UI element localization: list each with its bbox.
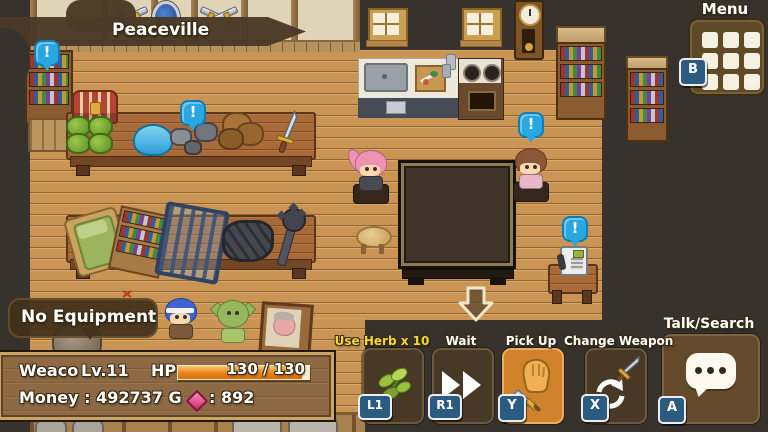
location-name: Peaceville bbox=[112, 20, 209, 40]
sword-item[interactable] bbox=[270, 110, 304, 158]
blue-haired-hero[interactable] bbox=[160, 296, 200, 352]
equipment-notice-bubble: No Equipment bbox=[8, 298, 158, 338]
bookshelf bbox=[556, 42, 606, 120]
goblin[interactable] bbox=[212, 298, 252, 354]
stove-top bbox=[459, 59, 501, 83]
creature-leg bbox=[72, 419, 104, 432]
clock-face bbox=[519, 4, 541, 26]
clock-pendulum-window bbox=[522, 29, 535, 53]
key-badge-y[interactable]: Y bbox=[498, 394, 526, 422]
key-badge-b[interactable]: B bbox=[679, 58, 707, 86]
status-panel: Weaco Lv.11 HP 130 / 130 Money : 492737 … bbox=[0, 352, 334, 420]
action-label-change-weapon: Change Weapon bbox=[564, 334, 664, 348]
mace-item[interactable] bbox=[264, 208, 308, 266]
action-label-use-herb: Use Herb x 10 bbox=[327, 334, 437, 348]
gem-count: : 892 bbox=[209, 388, 254, 407]
window bbox=[368, 8, 408, 44]
player-name: Weaco bbox=[19, 361, 78, 380]
stool bbox=[356, 226, 392, 256]
action-label-talk-search: Talk/Search bbox=[662, 316, 756, 332]
indicator-bookshelf[interactable]: ! bbox=[34, 40, 60, 66]
stove bbox=[458, 58, 504, 120]
towel bbox=[386, 101, 406, 114]
menu-label: Menu bbox=[688, 0, 762, 18]
key-badge-x[interactable]: X bbox=[581, 394, 609, 422]
speech-bubble-icon bbox=[686, 353, 736, 389]
hp-value: 130 / 130 bbox=[201, 360, 305, 378]
wall-post bbox=[353, 0, 360, 40]
sink bbox=[364, 63, 408, 92]
hp-label: HP bbox=[151, 361, 176, 380]
wall-clock bbox=[514, 0, 544, 60]
indicator-npc[interactable]: ! bbox=[518, 112, 544, 138]
indicator-phone[interactable]: ! bbox=[562, 216, 588, 242]
game-screen: Peaceville bbox=[0, 0, 768, 432]
key-badge-l1[interactable]: L1 bbox=[358, 394, 392, 420]
player-level: Lv.11 bbox=[81, 361, 129, 380]
cabbage-crate bbox=[66, 116, 112, 152]
indicator-rocks[interactable]: ! bbox=[180, 100, 206, 126]
pink-gem-icon bbox=[186, 390, 209, 413]
counter-base bbox=[358, 98, 458, 118]
steel-cage-item[interactable] bbox=[154, 201, 230, 285]
oven-door bbox=[468, 91, 496, 111]
kitchen-counter bbox=[358, 58, 502, 118]
brown-haired-villager[interactable] bbox=[510, 146, 550, 202]
window bbox=[462, 8, 502, 44]
action-label-pick-up: Pick Up bbox=[496, 334, 566, 348]
jar bbox=[442, 64, 451, 78]
grand-table bbox=[398, 160, 516, 282]
bookshelf bbox=[626, 68, 668, 142]
blue-slime-item[interactable] bbox=[133, 124, 173, 156]
key-badge-a[interactable]: A bbox=[658, 396, 686, 424]
dirt-pile-item[interactable] bbox=[218, 112, 262, 156]
money-text: Money : 492737 G bbox=[19, 388, 182, 407]
equipment-notice-text: No Equipment bbox=[21, 307, 156, 327]
action-label-wait: Wait bbox=[436, 334, 486, 348]
menu-grid-icon bbox=[702, 32, 760, 90]
creature-leg bbox=[35, 419, 67, 432]
exit-arrow[interactable] bbox=[456, 286, 496, 322]
key-badge-r1[interactable]: R1 bbox=[428, 394, 462, 420]
pink-haired-villager[interactable] bbox=[350, 148, 390, 204]
